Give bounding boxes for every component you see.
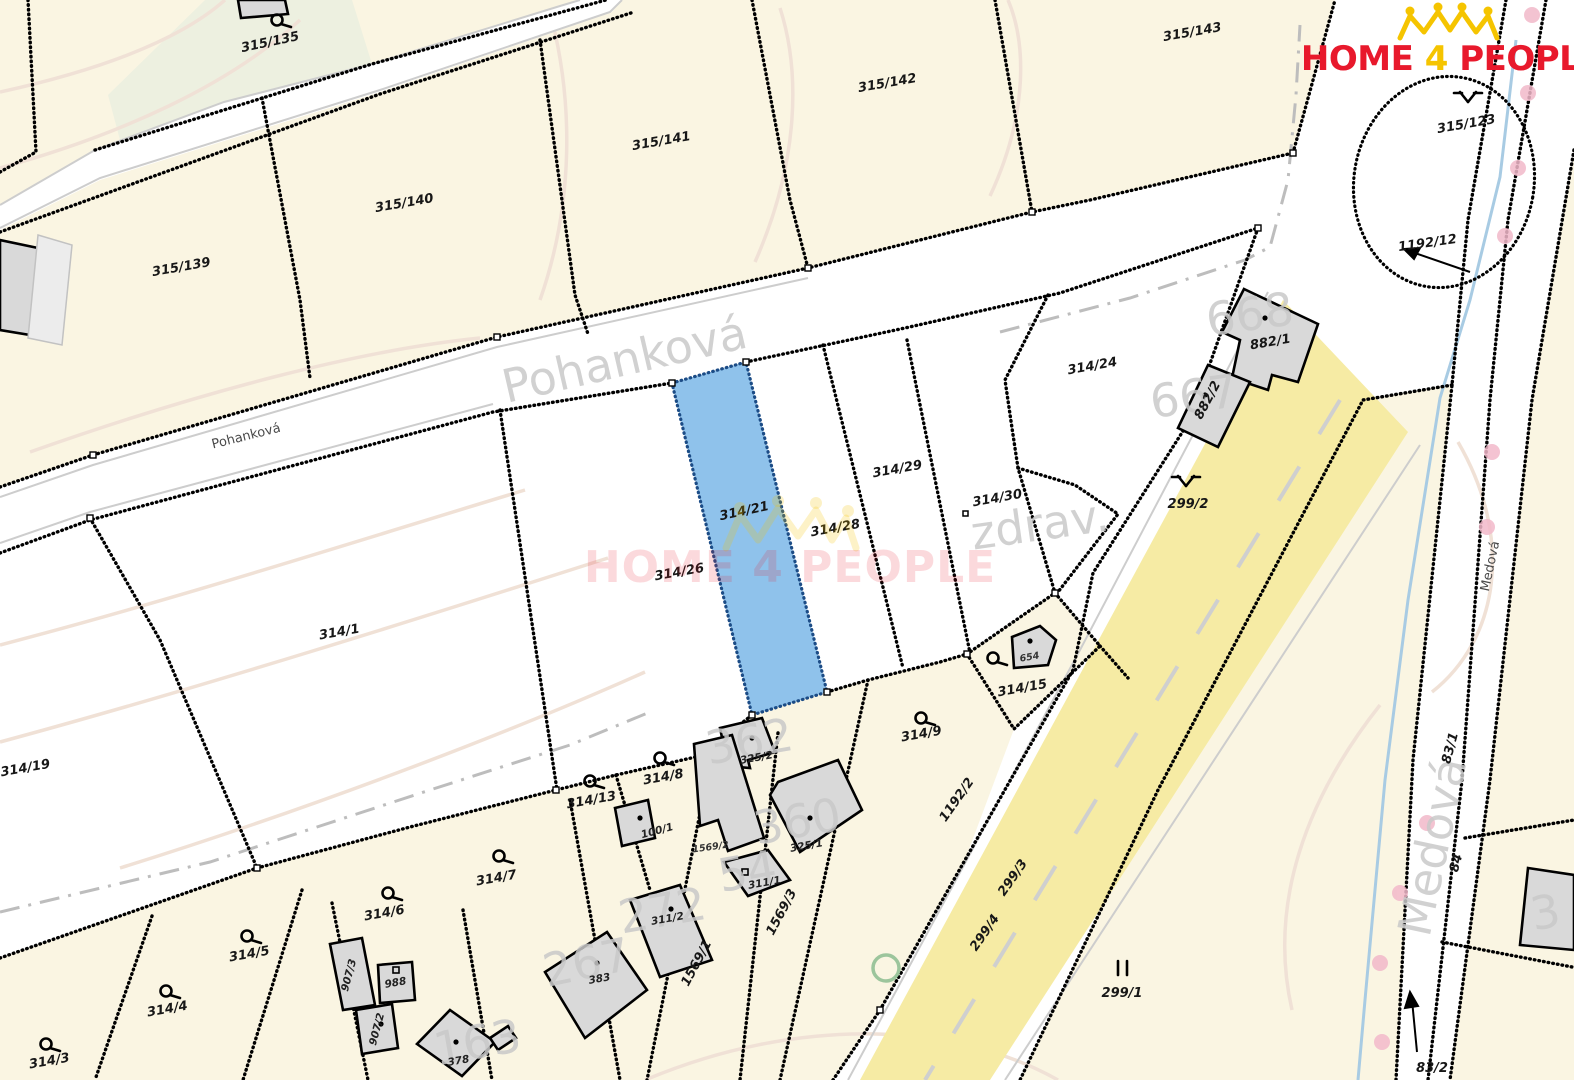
cadastral-map: Pohanková zdrav. Medová 668 667 362 360 …	[0, 0, 1574, 1080]
watermark: HOME 4 PEOPLE	[584, 495, 996, 593]
svg-text:HOME 4 PEOPLE: HOME 4 PEOPLE	[1301, 39, 1574, 79]
logo-home: HOME	[1301, 39, 1413, 79]
home4people-crown-icon	[1400, 12, 1497, 38]
parcel-label-84: 84	[1447, 852, 1466, 873]
road-island-oval	[1337, 62, 1551, 302]
logo-people: PEOPLE	[1459, 39, 1574, 79]
grassland-symbol-315-123	[1454, 92, 1482, 102]
parcel-label-314-29: 314/29	[871, 458, 923, 481]
parcel-label-299-1: 299/1	[1102, 986, 1143, 1001]
parcel-label-314-24: 314/24	[1066, 355, 1118, 378]
parcel-label-299-2: 299/2	[1168, 497, 1209, 512]
street-label-medova: Medová	[1478, 540, 1503, 593]
highlighted-parcel-314-21[interactable]	[672, 362, 827, 715]
logo-4: 4	[1425, 39, 1448, 79]
cadastral-map-viewport: Pohanková zdrav. Medová 668 667 362 360 …	[0, 0, 1574, 1080]
watermark-text: HOME 4 PEOPLE	[584, 542, 996, 593]
street-label-pohankova: Pohanková	[210, 421, 282, 453]
parcel-label-314-19: 314/19	[0, 757, 51, 780]
parcel-label-83-2: 83/2	[1416, 1061, 1448, 1076]
orchard-symbol-314-8	[655, 753, 675, 766]
parcel-label-1192-12: 1192/12	[1397, 232, 1458, 255]
parcel-label-314-1: 314/1	[318, 622, 361, 644]
parcel-label-315-123: 315/123	[1436, 112, 1497, 137]
